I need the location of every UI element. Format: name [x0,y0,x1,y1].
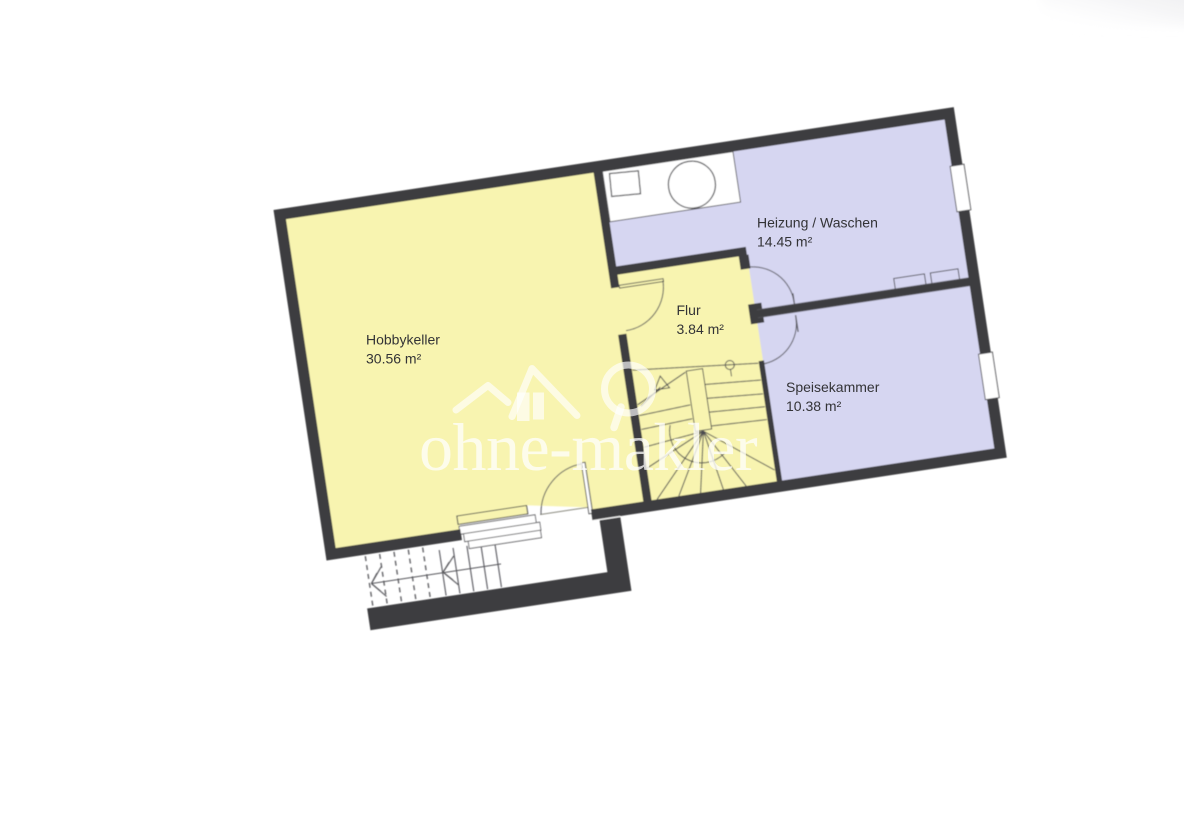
svg-text:30.56 m²: 30.56 m² [366,351,422,367]
svg-text:3.84 m²: 3.84 m² [677,321,725,337]
svg-text:10.38 m²: 10.38 m² [786,398,842,414]
svg-text:Flur: Flur [677,302,701,318]
svg-text:Hobbykeller: Hobbykeller [366,332,440,348]
svg-text:ohne-makler: ohne-makler [419,409,758,485]
svg-text:14.45 m²: 14.45 m² [757,234,813,250]
svg-text:Speisekammer: Speisekammer [786,379,880,395]
svg-text:Heizung / Waschen: Heizung / Waschen [757,215,878,231]
